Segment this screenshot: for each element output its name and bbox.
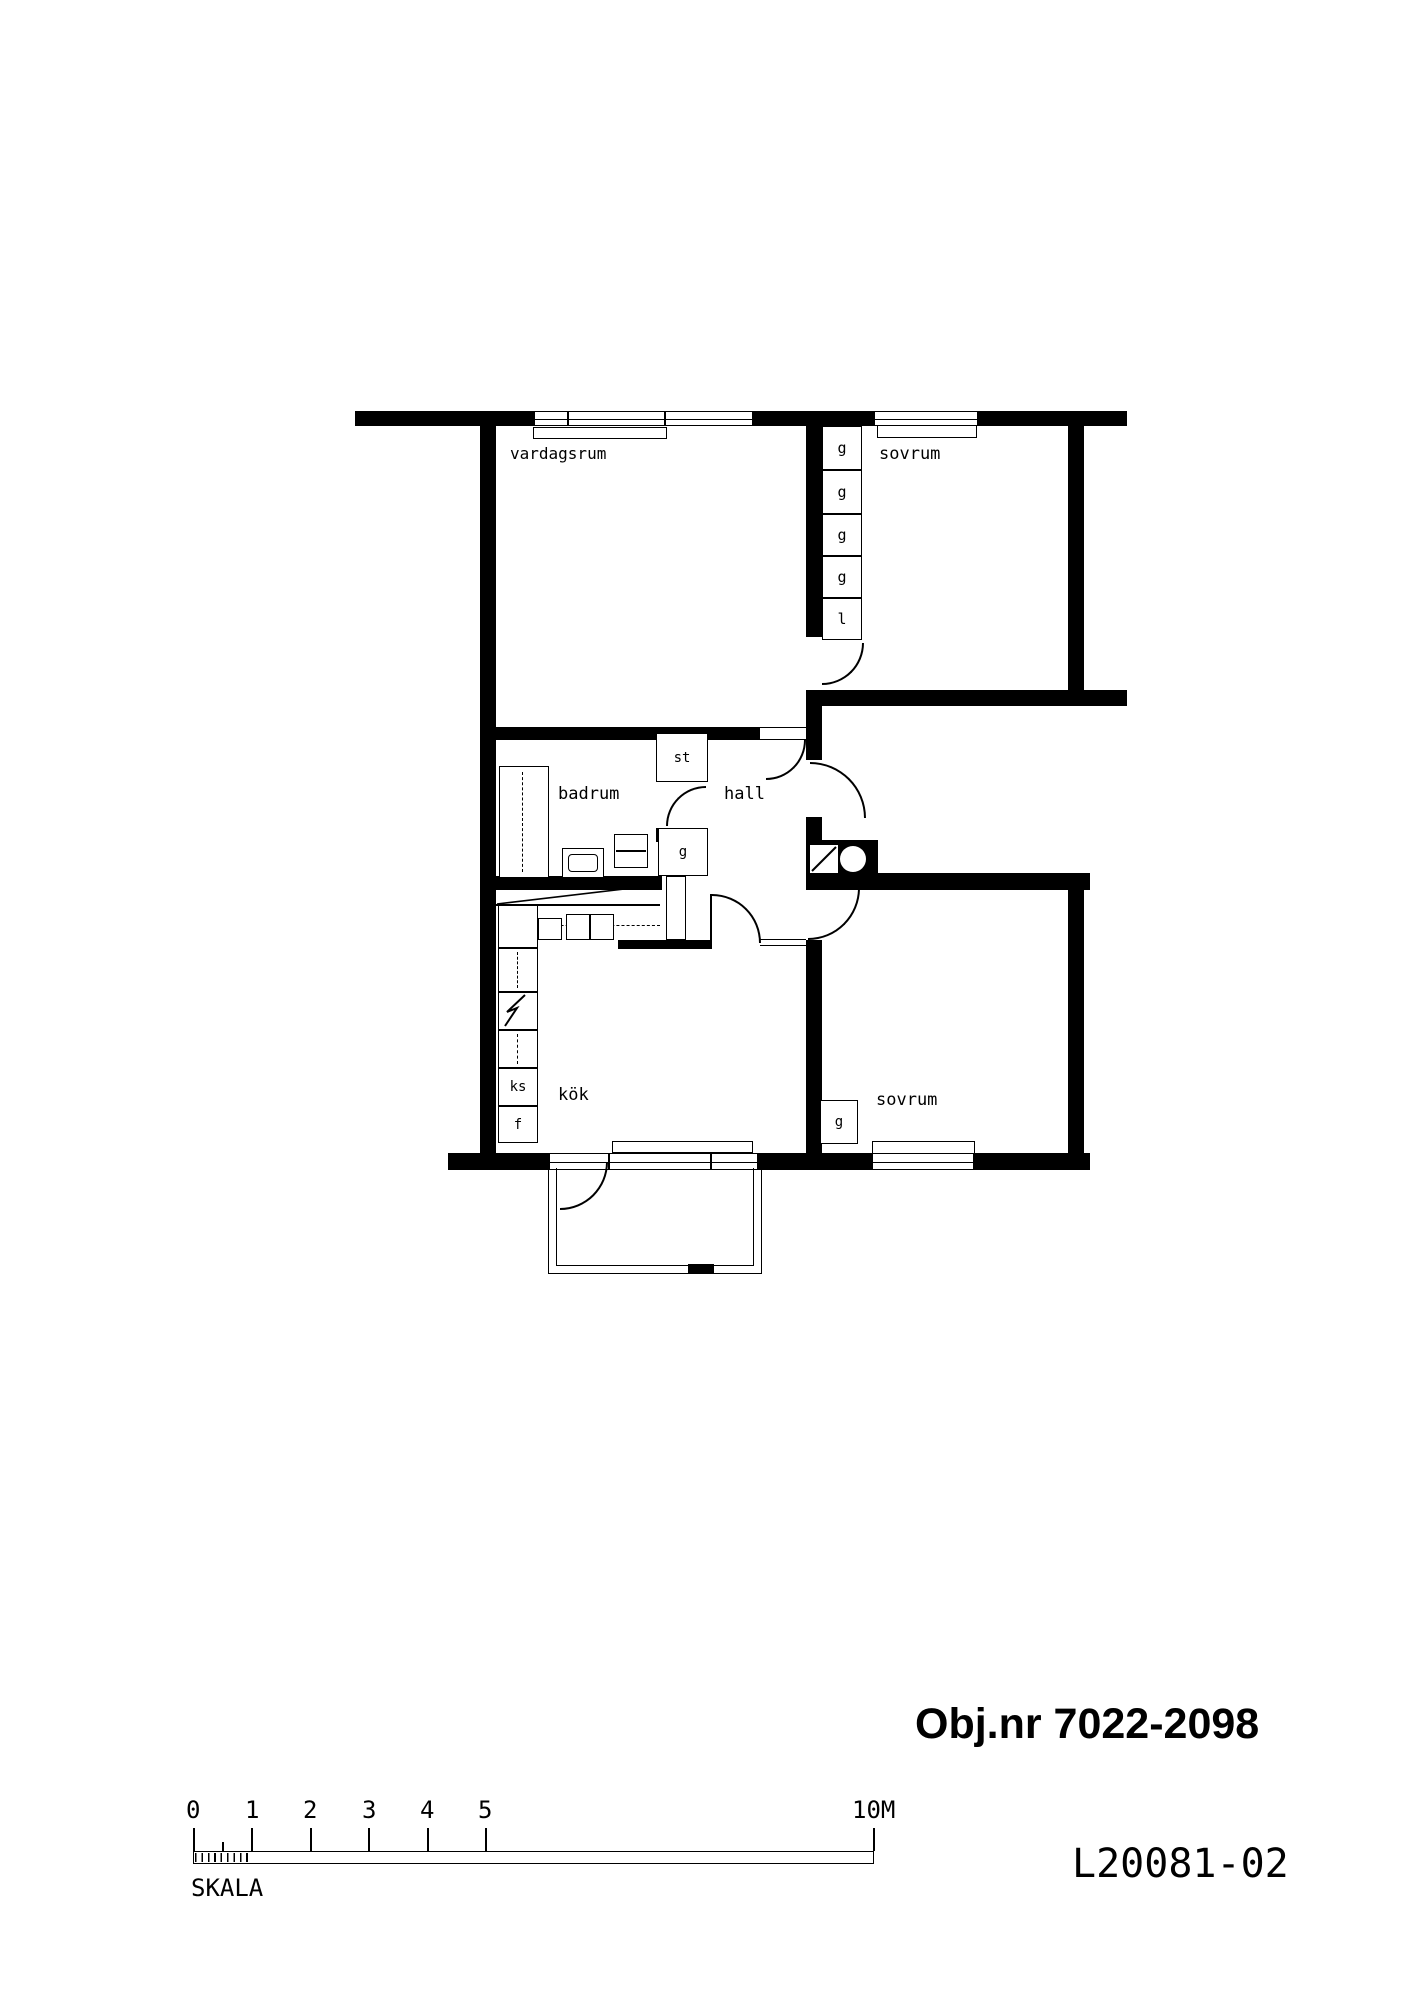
kitchen-tall-cabinet-1	[498, 905, 538, 948]
balcony-drain-mark	[688, 1264, 714, 1274]
window-sill-livingroom	[533, 427, 667, 439]
scale-tick-half	[222, 1842, 224, 1851]
threshold-dining-opening	[760, 939, 806, 946]
scale-end-label: 10M	[852, 1796, 895, 1824]
window-sill-kitchen	[612, 1141, 753, 1153]
room-label-bathroom: badrum	[558, 784, 619, 804]
hall-wardrobe-label: g	[679, 844, 687, 860]
wardrobe-cell-4: g	[822, 556, 862, 598]
window-livingroom-mullion-2	[664, 411, 666, 426]
wardrobe-label: g	[837, 439, 846, 457]
hall-wardrobe: g	[658, 828, 708, 876]
wardrobe-cell-3: g	[822, 514, 862, 556]
wardrobe-cell-2: g	[822, 470, 862, 514]
scale-tick-label-0: 0	[186, 1796, 200, 1824]
wall-kitchen-north	[618, 940, 712, 949]
wardrobe-label: l	[837, 610, 846, 628]
room-label-kitchen: kök	[558, 1085, 589, 1105]
room-label-bedroom-bottom: sovrum	[876, 1090, 937, 1110]
wall-left	[480, 411, 496, 1168]
scale-tick-10	[873, 1828, 875, 1851]
wall-right-bedroom-bottom	[1068, 873, 1084, 1170]
wall-hall-east-upper	[806, 426, 822, 637]
window-livingroom-mullion-1	[567, 411, 569, 426]
scale-tick-3	[368, 1828, 370, 1851]
room-label-bedroom-top: sovrum	[879, 444, 940, 464]
door-leaf-kitchen	[710, 894, 712, 943]
window-pane-line	[875, 419, 977, 420]
fridge-label: ks	[510, 1079, 527, 1095]
wardrobe-label: g	[837, 483, 846, 501]
scale-tick-0	[193, 1828, 195, 1851]
scale-tick-label-5: 5	[478, 1796, 492, 1824]
bathtub-centerline	[522, 772, 523, 872]
door-arc-kitchen	[712, 894, 761, 943]
shaft-duct-circle	[840, 846, 866, 872]
scale-tick-label-4: 4	[420, 1796, 434, 1824]
kitchen-cabinet-3	[498, 1030, 538, 1068]
shaft-diagonal-line	[810, 845, 838, 873]
kitchen-counter-cabinet	[538, 918, 562, 940]
kitchen-fridge: ks	[498, 1068, 538, 1106]
scale-tick-label-2: 2	[303, 1796, 317, 1824]
scale-tick-label-3: 3	[362, 1796, 376, 1824]
kitchen-sink-right	[590, 914, 614, 940]
object-number: Obj.nr 7022-2098	[915, 1700, 1259, 1749]
window-bedroom-bottom	[873, 1153, 973, 1170]
scale-caption: SKALA	[191, 1874, 263, 1902]
drawing-number: L20081-02	[1072, 1841, 1289, 1887]
bathtub	[499, 766, 549, 878]
shaft-duct-box	[810, 845, 838, 873]
scale-bar	[193, 1851, 874, 1864]
wardrobe-cell-1: g	[822, 426, 862, 470]
scale-tick-label-1: 1	[245, 1796, 259, 1824]
threshold-livingroom-door	[760, 727, 806, 740]
scale-tick-1	[251, 1828, 253, 1851]
kitchen-sink-left	[566, 914, 590, 940]
room-label-hall: hall	[724, 784, 765, 804]
wall-top-right	[977, 411, 1127, 426]
room-label-livingroom: vardagsrum	[510, 444, 606, 463]
door-arc-bathroom	[666, 786, 706, 826]
wardrobe-label: g	[837, 568, 846, 586]
wall-bottom-left	[448, 1153, 550, 1170]
window-sill-bedroom-bottom	[872, 1141, 975, 1154]
toilet-divider	[616, 850, 646, 852]
wall-livingroom-south	[495, 727, 768, 740]
door-arc-livingroom	[766, 740, 806, 780]
kitchen-freezer: f	[498, 1106, 538, 1143]
balcony-inner	[556, 1168, 754, 1266]
window-bedroom-top	[875, 411, 977, 426]
cabinet-2-centerline	[517, 952, 518, 988]
wall-bottom-middle	[757, 1153, 873, 1170]
wall-right-bedroom-top	[1068, 426, 1084, 706]
cleaning-closet-label: st	[674, 750, 691, 766]
wall-top-left	[355, 411, 535, 426]
cabinet-3-centerline	[517, 1034, 518, 1064]
kitchen-tall-cabinet-2	[498, 948, 538, 992]
door-arc-bedroom-bottom	[808, 888, 860, 940]
floor-plan-sheet: g g g g l st g ks f g vardagsrum sovrum …	[0, 0, 1413, 2000]
window-sill-bedroom-top	[877, 425, 977, 438]
scale-tick-4	[427, 1828, 429, 1851]
wall-top-middle	[752, 411, 875, 426]
scale-bar-hatching	[195, 1853, 250, 1862]
window-pane-line	[873, 1162, 973, 1163]
door-arc-entry	[810, 762, 866, 818]
scale-tick-2	[310, 1828, 312, 1851]
kitchen-drainboard-line	[495, 882, 660, 906]
bedroom-bottom-wardrobe: g	[820, 1100, 858, 1144]
wall-hall-east-mid	[806, 690, 822, 760]
scale-tick-5	[485, 1828, 487, 1851]
washbasin-bowl	[568, 854, 598, 872]
stove-zigzag-symbol	[498, 992, 538, 1030]
bedroom-wardrobe-label: g	[835, 1114, 843, 1130]
wardrobe-cell-5: l	[822, 598, 862, 640]
wall-stairwell-top	[806, 690, 1127, 706]
corridor-cabinet	[666, 876, 686, 940]
cleaning-closet: st	[656, 733, 708, 782]
wardrobe-label: g	[837, 526, 846, 544]
door-arc-bedroom-top	[822, 643, 864, 685]
freezer-label: f	[514, 1117, 522, 1133]
